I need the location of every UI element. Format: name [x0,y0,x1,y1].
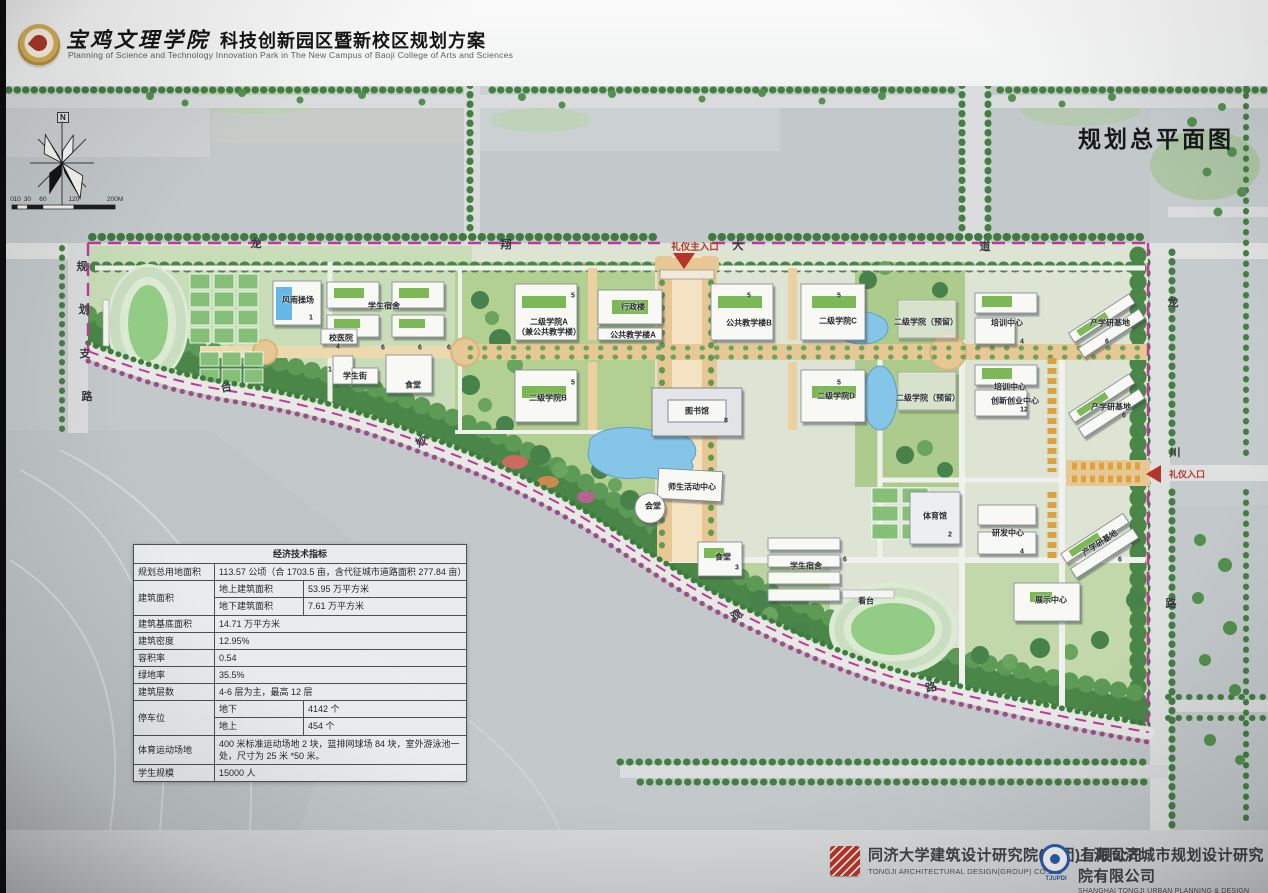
parking-label: 停车位 [134,701,215,735]
green-ratio-label: 绿地率 [134,666,215,683]
firm2-name-en: SHANGHAI TONGJI URBAN PLANNING & DESIGN … [1078,888,1268,893]
density-label: 建筑密度 [134,632,215,649]
plan-title: 科技创新园区暨新校区规划方案 [220,31,486,51]
plan-title-english: Planning of Science and Technology Innov… [68,50,513,60]
firm2-name-cn: 上海同济城市规划设计研究院有限公司 [1078,844,1268,886]
parking-above-value: 454 个 [304,718,467,735]
plan-poster: 宝鸡文理学院科技创新园区暨新校区规划方案 Planning of Science… [0,0,1268,893]
scale-tick: 10 [14,196,21,203]
students-value: 15000 人 [215,764,467,781]
poster-footer: 同济大学建筑设计研究院(集团)有限公司 TONGJI ARCHITECTURAL… [0,830,1268,893]
tjad-logo [830,846,860,876]
land-label: 规划总用地面积 [134,564,215,581]
compass-north-label: N [57,112,69,123]
gfa-below-value: 7.61 万平方米 [304,598,467,615]
college-emblem [18,24,60,66]
poster-header: 宝鸡文理学院科技创新园区暨新校区规划方案 Planning of Science… [0,0,1268,86]
college-name: 宝鸡文理学院 [66,28,210,52]
table-title: 经济技术指标 [134,545,467,564]
gfa-below-label: 地下建筑面积 [215,598,304,615]
main-entrance-label: 礼仪主入口 [671,239,719,253]
floors-value: 4-6 层为主，最高 12 层 [215,684,467,701]
far-label: 容积率 [134,649,215,666]
indicator-table-wrap: 经济技术指标 规划总用地面积 113.57 公顷（合 1703.5 亩，含代征城… [133,544,467,782]
gfa-label: 建筑面积 [134,581,215,615]
sports-label: 体育运动场地 [134,735,215,764]
scale-tick-labels: 0103060120200M [12,196,132,206]
density-value: 12.95% [215,632,467,649]
scale-tick: 60 [39,196,46,203]
scale-tick: 200M [107,196,123,203]
floors-label: 建筑层数 [134,684,215,701]
east-entrance-label: 礼仪入口 [1169,468,1205,481]
east-entrance [1066,460,1150,486]
economic-indicator-table: 经济技术指标 规划总用地面积 113.57 公顷（合 1703.5 亩，含代征城… [133,544,467,782]
tjupdi-abbr: TJUPDI [1038,876,1074,882]
sports-value: 400 米标准运动场地 2 块，篮排网球场 84 块，室外游泳池一处，尺寸为 2… [215,735,467,764]
far-value: 0.54 [215,649,467,666]
gfa-above-value: 53.95 万平方米 [304,581,467,598]
footprint-value: 14.71 万平方米 [215,615,467,632]
scale-tick: 120 [68,196,79,203]
map-sheet-title: 规划总平面图 [1078,120,1234,154]
parking-above-label: 地上 [215,718,304,735]
land-value: 113.57 公顷（合 1703.5 亩，含代征城市道路面积 277.84 亩） [215,564,467,581]
scale-tick: 30 [24,196,31,203]
tjupdi-logo [1040,844,1070,874]
parking-below-label: 地下 [215,701,304,718]
footprint-label: 建筑基底面积 [134,615,215,632]
firm2-block: 上海同济城市规划设计研究院有限公司 SHANGHAI TONGJI URBAN … [1078,844,1268,893]
parking-below-value: 4142 个 [304,701,467,718]
gfa-above-label: 地上建筑面积 [215,581,304,598]
green-ratio-value: 35.5% [215,666,467,683]
students-label: 学生规模 [134,764,215,781]
